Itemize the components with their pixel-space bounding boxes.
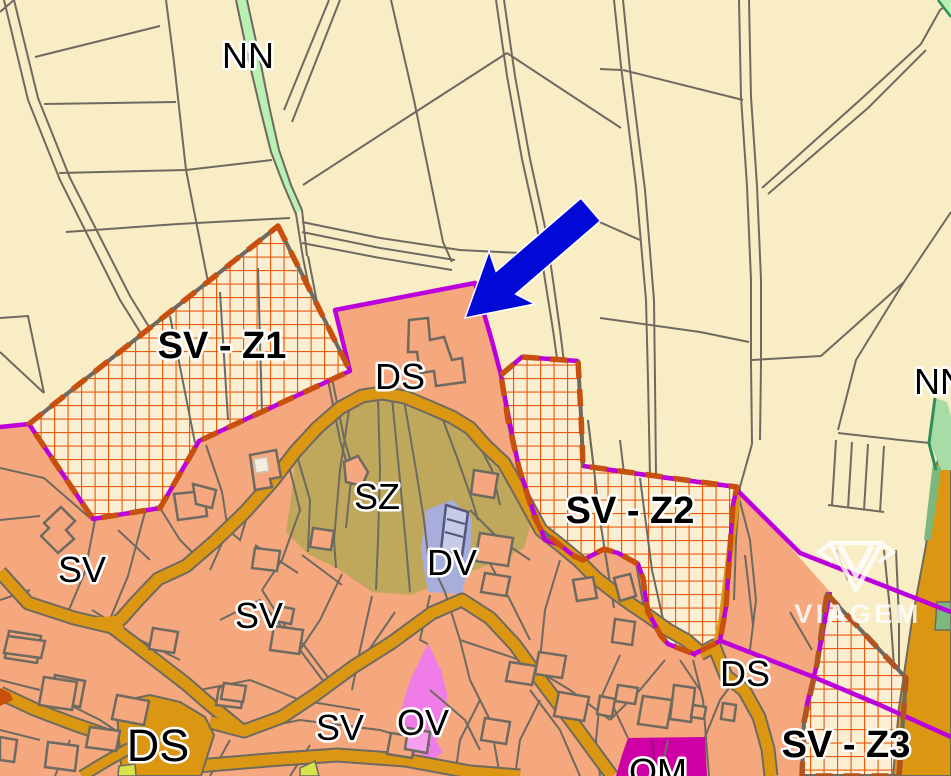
svg-text:SZ: SZ <box>354 476 400 517</box>
svg-text:SV - Z1: SV - Z1 <box>158 325 287 367</box>
svg-text:DS: DS <box>720 653 770 694</box>
svg-text:DS: DS <box>375 356 425 397</box>
svg-text:SV - Z2: SV - Z2 <box>566 490 695 532</box>
svg-text:SV - Z3: SV - Z3 <box>782 724 911 766</box>
svg-text:DV: DV <box>427 542 477 583</box>
svg-text:SV: SV <box>316 707 364 748</box>
svg-text:NN: NN <box>914 361 951 402</box>
svg-text:OV: OV <box>397 702 449 743</box>
svg-text:VIAGEM: VIAGEM <box>794 599 922 629</box>
svg-text:NN: NN <box>222 35 274 76</box>
svg-text:OM: OM <box>629 751 687 776</box>
svg-text:SV: SV <box>58 549 106 590</box>
svg-text:SV: SV <box>235 595 283 636</box>
svg-text:DS: DS <box>127 720 190 771</box>
